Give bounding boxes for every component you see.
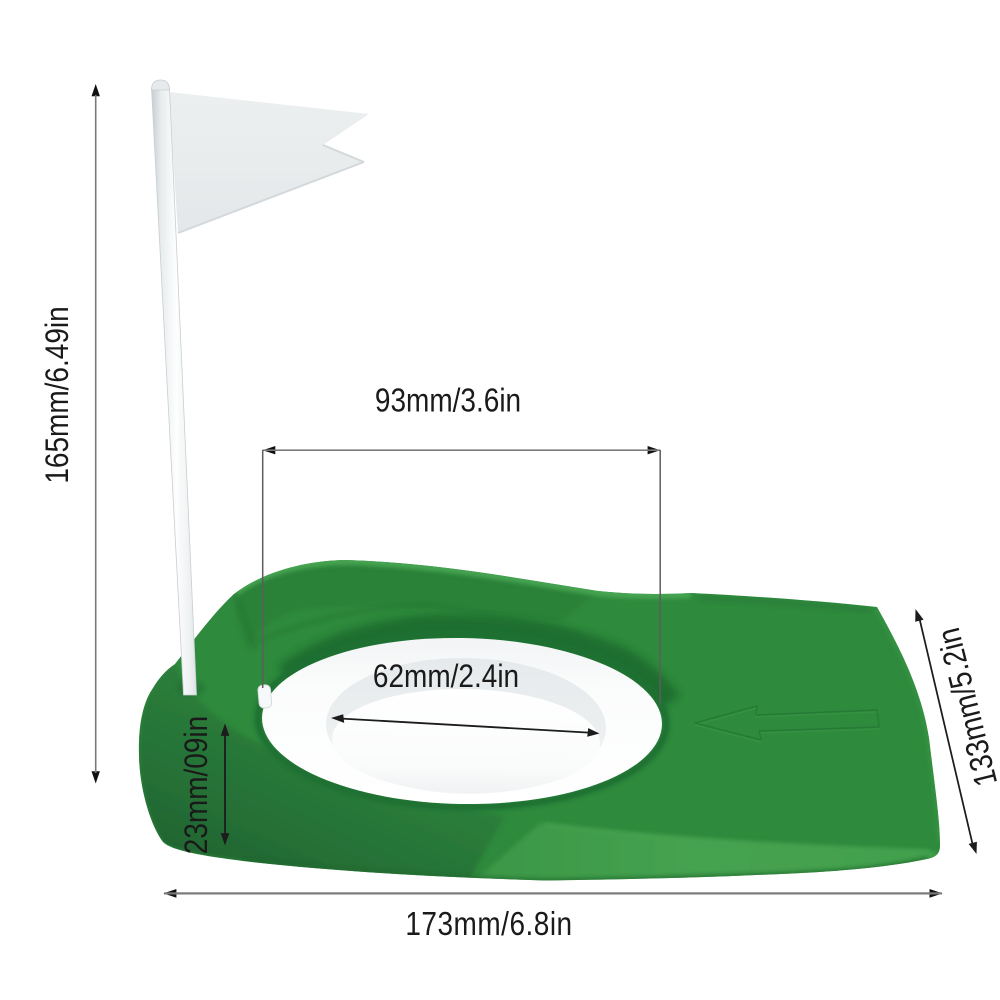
svg-text:173mm/6.8in: 173mm/6.8in bbox=[405, 904, 572, 942]
svg-text:62mm/2.4in: 62mm/2.4in bbox=[373, 659, 519, 694]
svg-text:165mm/6.49in: 165mm/6.49in bbox=[40, 306, 75, 483]
svg-text:23mm/09in: 23mm/09in bbox=[179, 716, 214, 854]
svg-text:93mm/3.6in: 93mm/3.6in bbox=[375, 381, 521, 419]
